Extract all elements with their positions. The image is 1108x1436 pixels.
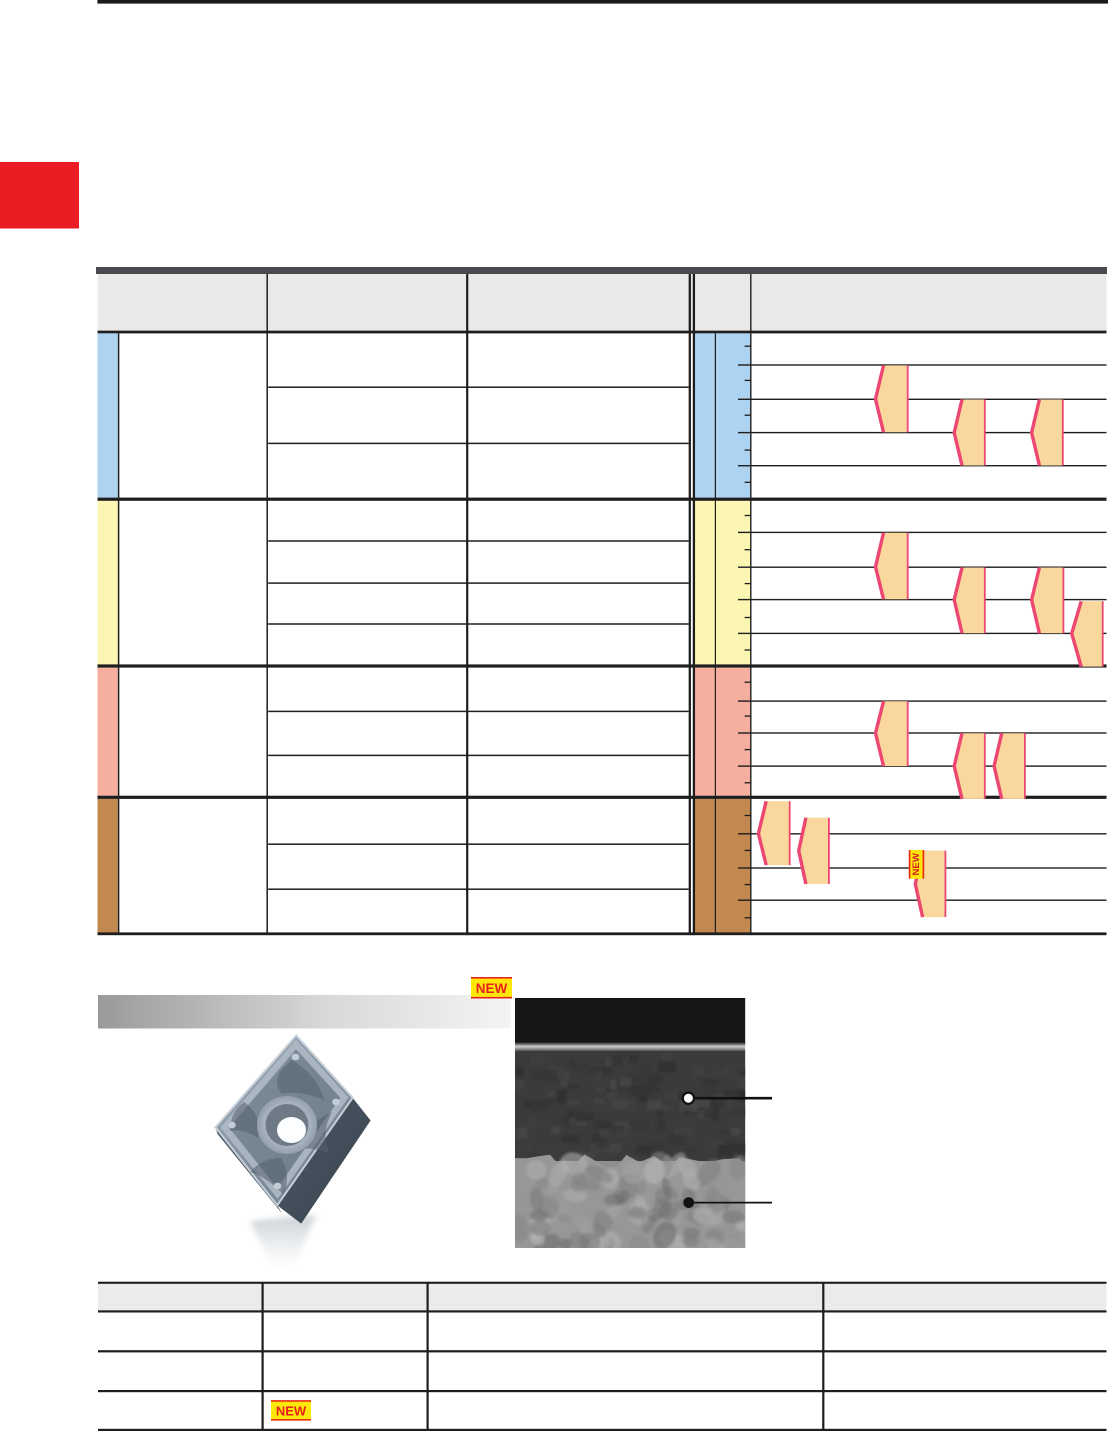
svg-text:NEW: NEW [911, 852, 922, 875]
svg-text:NEW: NEW [276, 1404, 307, 1419]
svg-text:NEW: NEW [476, 981, 508, 996]
